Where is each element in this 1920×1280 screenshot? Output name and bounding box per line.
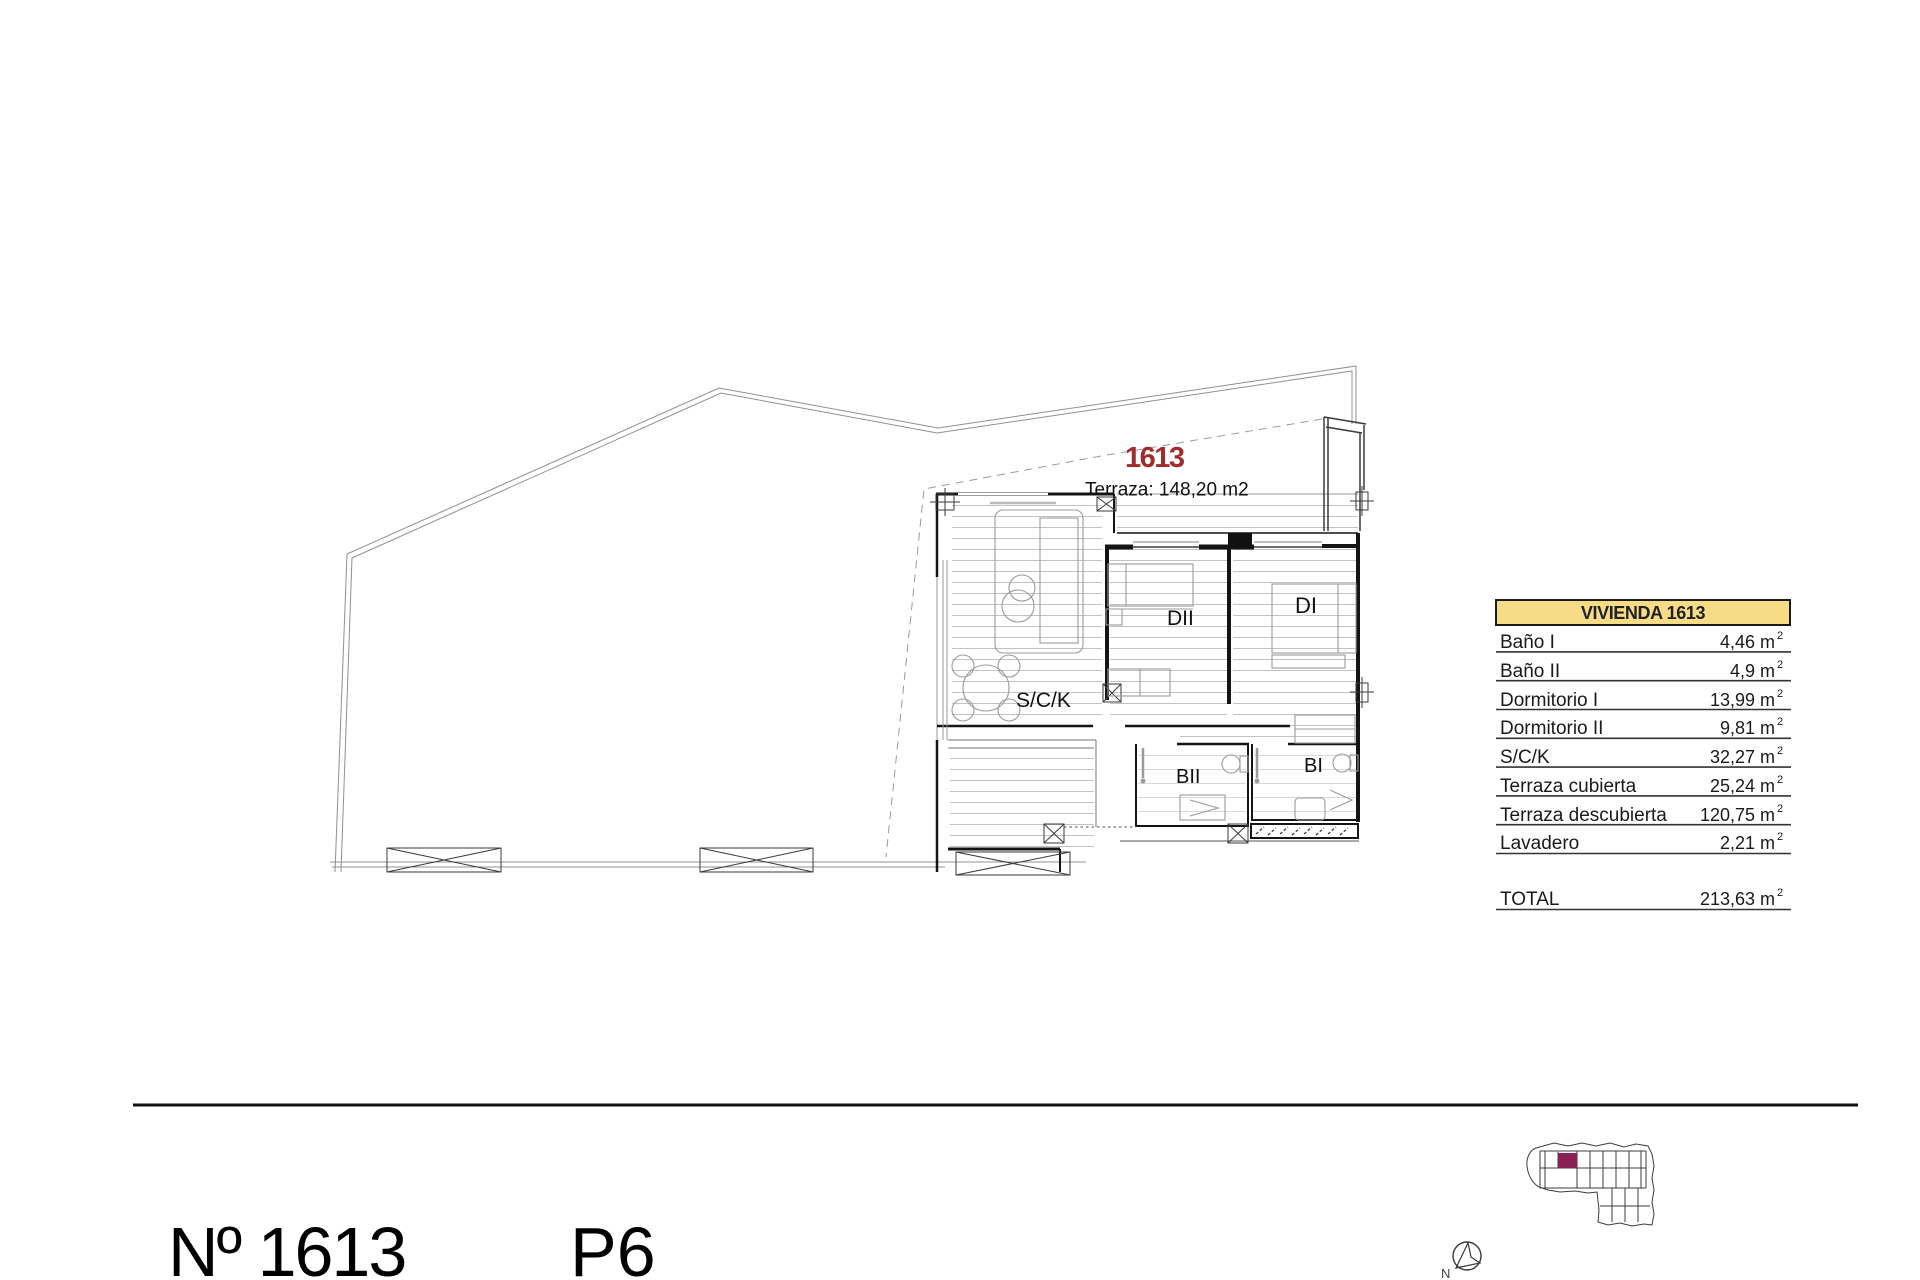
svg-text:Baño I: Baño I xyxy=(1500,632,1555,653)
svg-text:Terraza descubierta: Terraza descubierta xyxy=(1500,805,1667,826)
svg-text:BII: BII xyxy=(1176,766,1200,788)
svg-text:S/C/K: S/C/K xyxy=(1500,747,1550,768)
svg-text:BI: BI xyxy=(1304,755,1323,777)
svg-text:2: 2 xyxy=(1777,831,1783,843)
svg-text:2: 2 xyxy=(1777,688,1783,700)
svg-text:2: 2 xyxy=(1777,774,1783,786)
svg-text:4,46 m: 4,46 m xyxy=(1720,632,1775,652)
svg-text:S/C/K: S/C/K xyxy=(1016,689,1071,712)
svg-text:Baño II: Baño II xyxy=(1500,661,1560,682)
svg-text:Lavadero: Lavadero xyxy=(1500,833,1579,854)
svg-text:2: 2 xyxy=(1777,745,1783,757)
svg-text:2: 2 xyxy=(1777,630,1783,642)
svg-text:Terraza: 148,20 m2: Terraza: 148,20 m2 xyxy=(1085,480,1249,501)
svg-text:2: 2 xyxy=(1777,803,1783,815)
svg-text:Dormitorio II: Dormitorio II xyxy=(1500,718,1603,739)
svg-text:2: 2 xyxy=(1777,716,1783,728)
svg-text:32,27 m: 32,27 m xyxy=(1710,747,1775,767)
svg-text:Dormitorio I: Dormitorio I xyxy=(1500,690,1598,711)
svg-text:120,75 m: 120,75 m xyxy=(1700,805,1775,825)
svg-text:P6: P6 xyxy=(570,1213,656,1280)
svg-text:13,99 m: 13,99 m xyxy=(1710,690,1775,710)
svg-text:1613: 1613 xyxy=(1125,442,1185,474)
svg-text:2: 2 xyxy=(1777,887,1783,899)
svg-text:VIVIENDA 1613: VIVIENDA 1613 xyxy=(1581,603,1706,623)
svg-text:TOTAL: TOTAL xyxy=(1500,889,1559,910)
svg-text:213,63 m: 213,63 m xyxy=(1700,889,1775,909)
svg-text:9,81 m: 9,81 m xyxy=(1720,718,1775,738)
svg-text:2: 2 xyxy=(1777,659,1783,671)
svg-text:Nº 1613: Nº 1613 xyxy=(168,1213,405,1280)
svg-text:25,24 m: 25,24 m xyxy=(1710,776,1775,796)
svg-text:4,9 m: 4,9 m xyxy=(1730,661,1775,681)
svg-text:N: N xyxy=(1441,1266,1450,1280)
svg-text:DII: DII xyxy=(1167,607,1194,630)
svg-text:DI: DI xyxy=(1295,593,1317,618)
svg-text:Terraza cubierta: Terraza cubierta xyxy=(1500,776,1637,797)
svg-text:2,21 m: 2,21 m xyxy=(1720,833,1775,853)
